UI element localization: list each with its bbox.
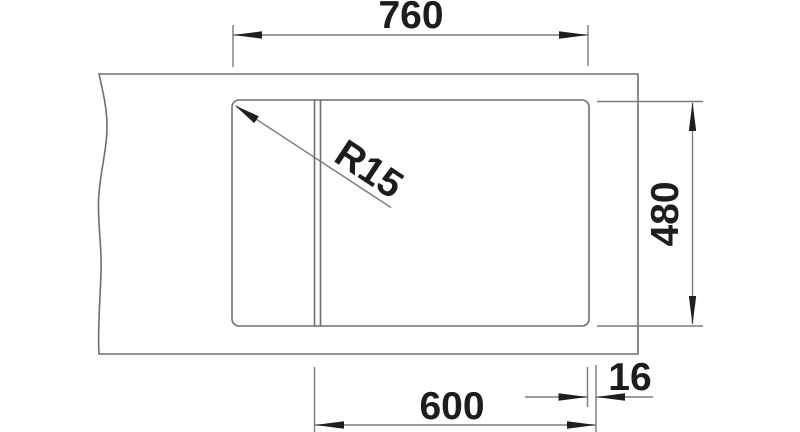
worktop-outline	[98, 74, 638, 354]
arrowhead-right-icon	[559, 393, 588, 400]
recess-divider	[315, 101, 321, 325]
arrowhead-down-icon	[689, 296, 696, 325]
dimension-drawing: 760 480 600 16	[0, 0, 800, 432]
recess-rect	[232, 100, 589, 326]
dimension-overall-depth: 480	[597, 102, 703, 327]
worktop-edge	[99, 74, 638, 354]
dimension-cabinet-width: 600	[315, 365, 597, 432]
dim-label-overall-width: 760	[378, 0, 443, 37]
sink-recess-outline	[232, 100, 589, 326]
arrowhead-corner-icon	[235, 106, 259, 124]
drawing-canvas: 760 480 600 16	[0, 0, 800, 432]
dimension-overall-width: 760	[233, 0, 588, 67]
arrowhead-up-icon	[689, 102, 696, 131]
arrowhead-right-icon	[559, 31, 588, 38]
dimension-edge-offset: 16	[525, 356, 653, 407]
dim-label-corner-radius: R15	[327, 132, 410, 207]
worktop-break-line	[98, 74, 107, 354]
arrowhead-right-icon	[567, 421, 596, 428]
annotation-corner-radius: R15	[235, 106, 411, 208]
arrowhead-left-icon	[233, 31, 262, 38]
dim-label-overall-depth: 480	[644, 181, 687, 246]
arrowhead-left-icon	[315, 421, 344, 428]
dim-label-edge-offset: 16	[608, 356, 651, 399]
dim-label-cabinet-width: 600	[419, 385, 484, 428]
